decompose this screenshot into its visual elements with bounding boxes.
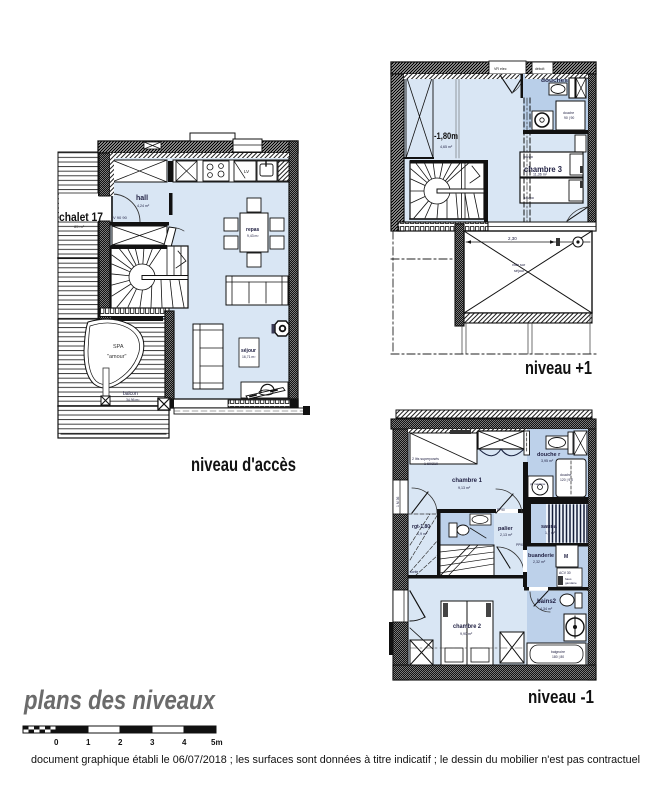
svg-text:baignoire: baignoire (551, 650, 565, 654)
svg-text:vide sur: vide sur (512, 263, 526, 267)
svg-text:11,36 m²: 11,36 m² (533, 173, 548, 177)
svg-text:85 m²: 85 m² (74, 224, 85, 229)
svg-text:180 | 80: 180 | 80 (552, 655, 564, 659)
svg-text:niveau +1: niveau +1 (525, 358, 592, 378)
svg-text:"amour": "amour" (107, 354, 127, 360)
svg-text:M: M (564, 554, 568, 560)
svg-text:sauna: sauna (541, 524, 558, 530)
svg-text:34,96 m²: 34,96 m² (126, 398, 140, 402)
svg-text:90 | 90: 90 | 90 (564, 116, 574, 120)
svg-text:120 | 9 0: 120 | 9 0 (560, 478, 573, 482)
svg-text:plans des niveaux: plans des niveaux (23, 685, 216, 715)
svg-text:2,13 m²: 2,13 m² (500, 533, 513, 537)
svg-text:séjour: séjour (241, 348, 256, 354)
svg-text:douche r: douche r (537, 452, 561, 458)
svg-text:chambre 2: chambre 2 (453, 623, 481, 630)
svg-text:rgt-1,80: rgt-1,80 (412, 524, 430, 530)
svg-text:2: 2 (118, 738, 123, 747)
svg-text:4,34 m²: 4,34 m² (540, 607, 553, 611)
svg-text:4,65 m²: 4,65 m² (440, 145, 453, 149)
svg-text:1: 1 (86, 738, 91, 747)
svg-text:9,43 m²: 9,43 m² (247, 234, 259, 238)
svg-text:2,32 m²: 2,32 m² (533, 560, 546, 564)
svg-text:bains2: bains2 (537, 599, 557, 605)
svg-text:1 60/210: 1 60/210 (424, 462, 438, 466)
svg-text:niveau -1: niveau -1 (528, 687, 594, 707)
svg-text:douche: douche (563, 111, 574, 115)
svg-text:160/200: 160/200 (523, 155, 534, 159)
svg-text:16,71 m²: 16,71 m² (242, 355, 256, 359)
svg-text:palier: palier (498, 526, 514, 532)
svg-text:1,9 m²: 1,9 m² (417, 532, 428, 536)
svg-text:sortie: sortie (410, 570, 418, 574)
svg-text:VR elec: VR elec (494, 67, 507, 71)
svg-text:3: 3 (150, 738, 155, 747)
svg-text:4: 4 (182, 738, 187, 747)
svg-text:PP90: PP90 (516, 543, 524, 547)
svg-text:balcon: balcon (123, 391, 138, 397)
svg-text:V 90 90: V 90 90 (113, 215, 128, 220)
svg-text:chambre 1: chambre 1 (452, 477, 482, 484)
svg-text:déboît: déboît (535, 67, 545, 71)
svg-text:9,90 m²: 9,90 m² (460, 632, 473, 636)
svg-text:niveau d'accès: niveau d'accès (191, 455, 296, 476)
svg-text:-1,80m: -1,80m (434, 131, 458, 141)
svg-text:chalet 17: chalet 17 (59, 212, 103, 224)
svg-text:0: 0 (54, 738, 59, 747)
svg-text:douche: douche (560, 473, 571, 477)
svg-text:gandaire: gandaire (565, 581, 577, 585)
svg-text:PP90: PP90 (497, 508, 505, 512)
svg-text:4,24 m²: 4,24 m² (137, 204, 150, 208)
svg-text:3,95 m²: 3,95 m² (541, 459, 554, 463)
svg-text:5m: 5m (211, 738, 223, 747)
svg-text:160/200: 160/200 (524, 196, 535, 200)
svg-text:SPA: SPA (113, 344, 124, 350)
svg-text:ACV 30: ACV 30 (559, 571, 571, 575)
svg-text:LV: LV (244, 169, 249, 174)
svg-text:9,13 m²: 9,13 m² (458, 486, 471, 490)
svg-text:séjour: séjour (514, 269, 525, 273)
svg-text:buanderie: buanderie (528, 553, 554, 559)
svg-text:repas: repas (246, 227, 260, 233)
svg-text:1 M 36: 1 M 36 (396, 497, 400, 507)
svg-text:hall: hall (136, 195, 148, 202)
svg-text:pl. machine: pl. machine (530, 482, 546, 486)
svg-text:document graphique établi le 0: document graphique établi le 06/07/2018 … (31, 754, 640, 766)
svg-text:2 lits superposés: 2 lits superposés (412, 457, 439, 461)
svg-text:2,30: 2,30 (508, 236, 517, 241)
svg-text:1,7 m²: 1,7 m² (545, 531, 556, 535)
